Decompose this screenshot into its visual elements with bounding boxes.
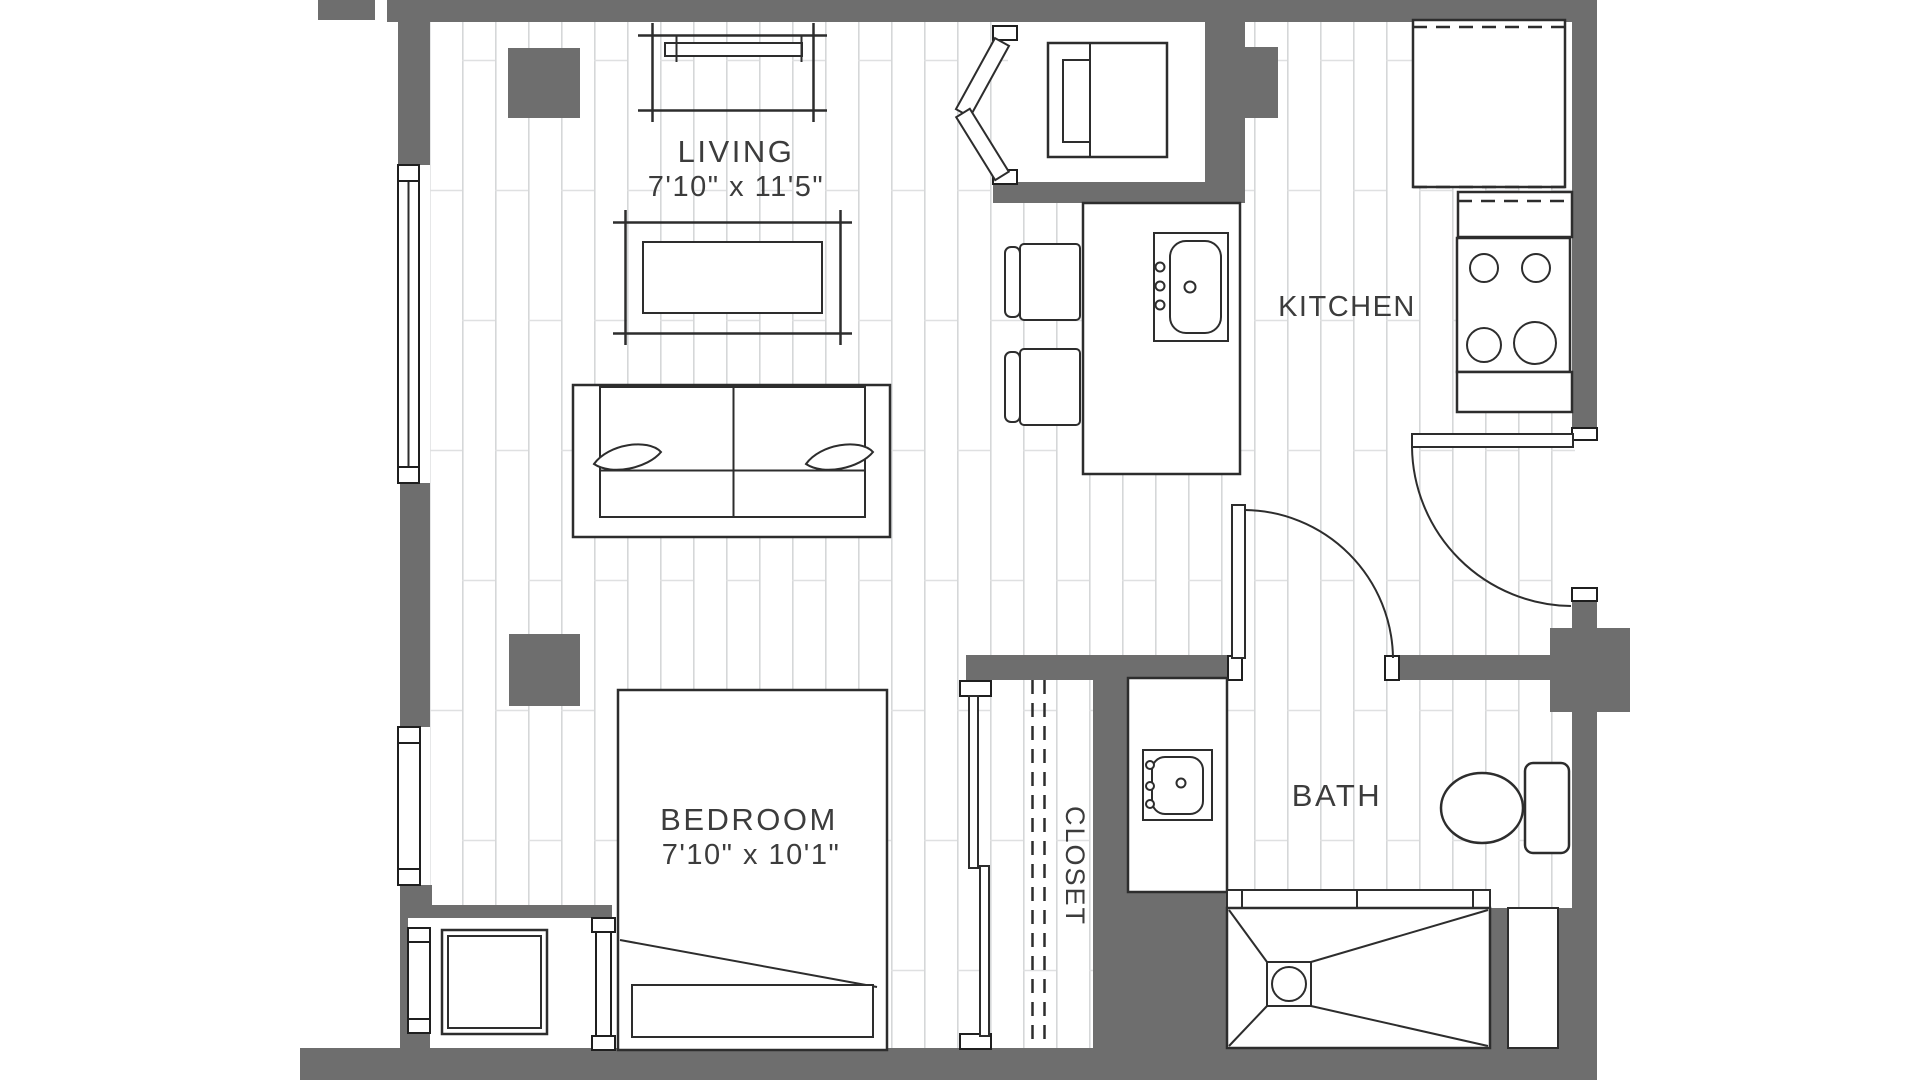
wall-segment: [1490, 908, 1508, 1050]
burner: [1470, 254, 1498, 282]
wall-segment: [966, 655, 1228, 680]
wall-segment: [1128, 890, 1228, 1052]
floor-plan-page: LIVING 7'10" x 11'5" KITCHEN BEDROOM 7'1…: [0, 0, 1920, 1080]
burner: [1467, 328, 1501, 362]
nook-glass-partition: [596, 918, 611, 1050]
shower: [1227, 890, 1490, 1048]
living-label: LIVING: [678, 134, 795, 169]
wall-segment: [1558, 908, 1574, 1050]
closet-label: CLOSET: [1060, 806, 1090, 926]
storage-unit-inner: [448, 936, 541, 1028]
burner: [1522, 254, 1550, 282]
wall-segment: [400, 483, 430, 727]
wall-segment: [1093, 678, 1128, 1052]
wall-segment: [1572, 0, 1597, 430]
wall-segment: [400, 905, 612, 918]
bath-label: BATH: [1292, 778, 1382, 813]
window-jamb: [398, 727, 420, 743]
door-leaf: [1412, 434, 1573, 447]
bar-stool: [1005, 244, 1080, 320]
wall-segment: [300, 1048, 1597, 1080]
wall-segment: [1399, 655, 1550, 680]
pillow: [632, 985, 873, 1037]
washer-dryer-door: [1063, 60, 1090, 142]
wall-segment: [387, 0, 1597, 22]
wall-segment: [318, 0, 375, 20]
window-jamb: [398, 165, 419, 181]
living-dimensions: 7'10" x 11'5": [648, 171, 824, 203]
door-leaf: [1232, 505, 1245, 658]
vanity-sink: [1143, 750, 1212, 820]
floor-plan-drawing: LIVING 7'10" x 11'5" KITCHEN BEDROOM 7'1…: [0, 0, 1920, 1080]
entry-column: [1550, 628, 1630, 712]
shower-glass: [1227, 890, 1490, 908]
window: [408, 928, 430, 1033]
door-jamb: [1385, 656, 1399, 680]
burner: [1514, 322, 1556, 364]
sink-drain: [1185, 282, 1196, 293]
toilet-tank: [1525, 763, 1569, 853]
counter: [1458, 192, 1572, 237]
door-jamb: [1228, 656, 1242, 680]
bedroom-dimensions: 7'10" x 10'1": [662, 839, 841, 871]
door-jamb: [1572, 588, 1597, 601]
refrigerator: [1413, 20, 1565, 187]
wall-segment: [1205, 15, 1245, 203]
plumbing-niche: [1508, 908, 1558, 1048]
window-jamb: [408, 1019, 430, 1033]
wall-segment: [1245, 47, 1278, 118]
door-jamb: [960, 681, 991, 696]
sink-drain: [1177, 779, 1186, 788]
structural-column: [509, 634, 580, 706]
window-jamb: [398, 869, 420, 885]
kitchen-label: KITCHEN: [1278, 291, 1416, 323]
wall-segment: [398, 0, 430, 165]
window: [398, 727, 420, 885]
window-jamb: [408, 928, 430, 942]
window-jamb: [592, 1036, 615, 1050]
toilet-bowl: [1441, 773, 1523, 843]
utility-nook: [442, 930, 547, 1034]
window-jamb: [592, 918, 615, 932]
structural-column: [508, 48, 580, 118]
counter: [1457, 372, 1572, 412]
wall-segment: [1572, 712, 1597, 1052]
bedroom-label: BEDROOM: [660, 802, 838, 837]
window-jamb: [398, 467, 419, 483]
island-sink: [1154, 233, 1228, 341]
sliding-door-panel: [969, 696, 978, 868]
bar-stool: [1005, 349, 1080, 425]
wall-segment: [1572, 601, 1597, 628]
shower-drain: [1272, 967, 1306, 1001]
door-jamb: [1572, 428, 1597, 440]
sofa: [573, 385, 890, 537]
range: [1457, 238, 1570, 372]
sliding-door-panel: [980, 866, 989, 1036]
